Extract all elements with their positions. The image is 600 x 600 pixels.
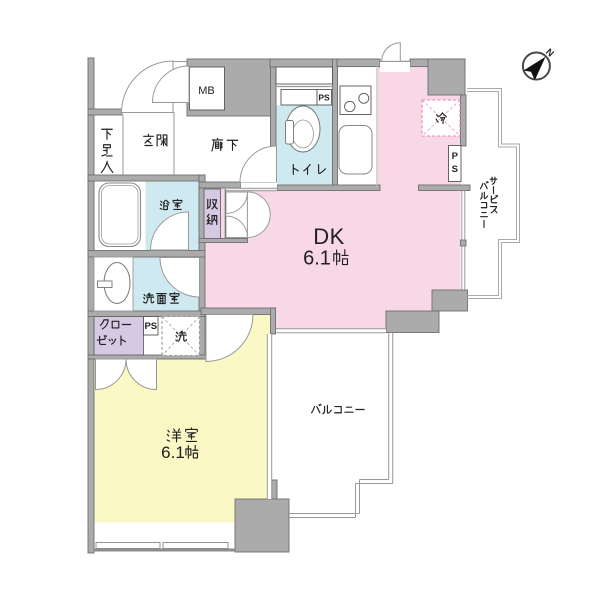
svg-text:S: S (452, 164, 458, 175)
svg-text:6.1: 6.1 (161, 443, 185, 462)
svg-text:P: P (452, 151, 459, 162)
svg-text:PS: PS (144, 321, 157, 332)
svg-text:6.1: 6.1 (303, 248, 331, 270)
svg-text:MB: MB (198, 85, 215, 97)
svg-text:DK: DK (313, 224, 345, 249)
svg-text:PS: PS (318, 93, 330, 103)
